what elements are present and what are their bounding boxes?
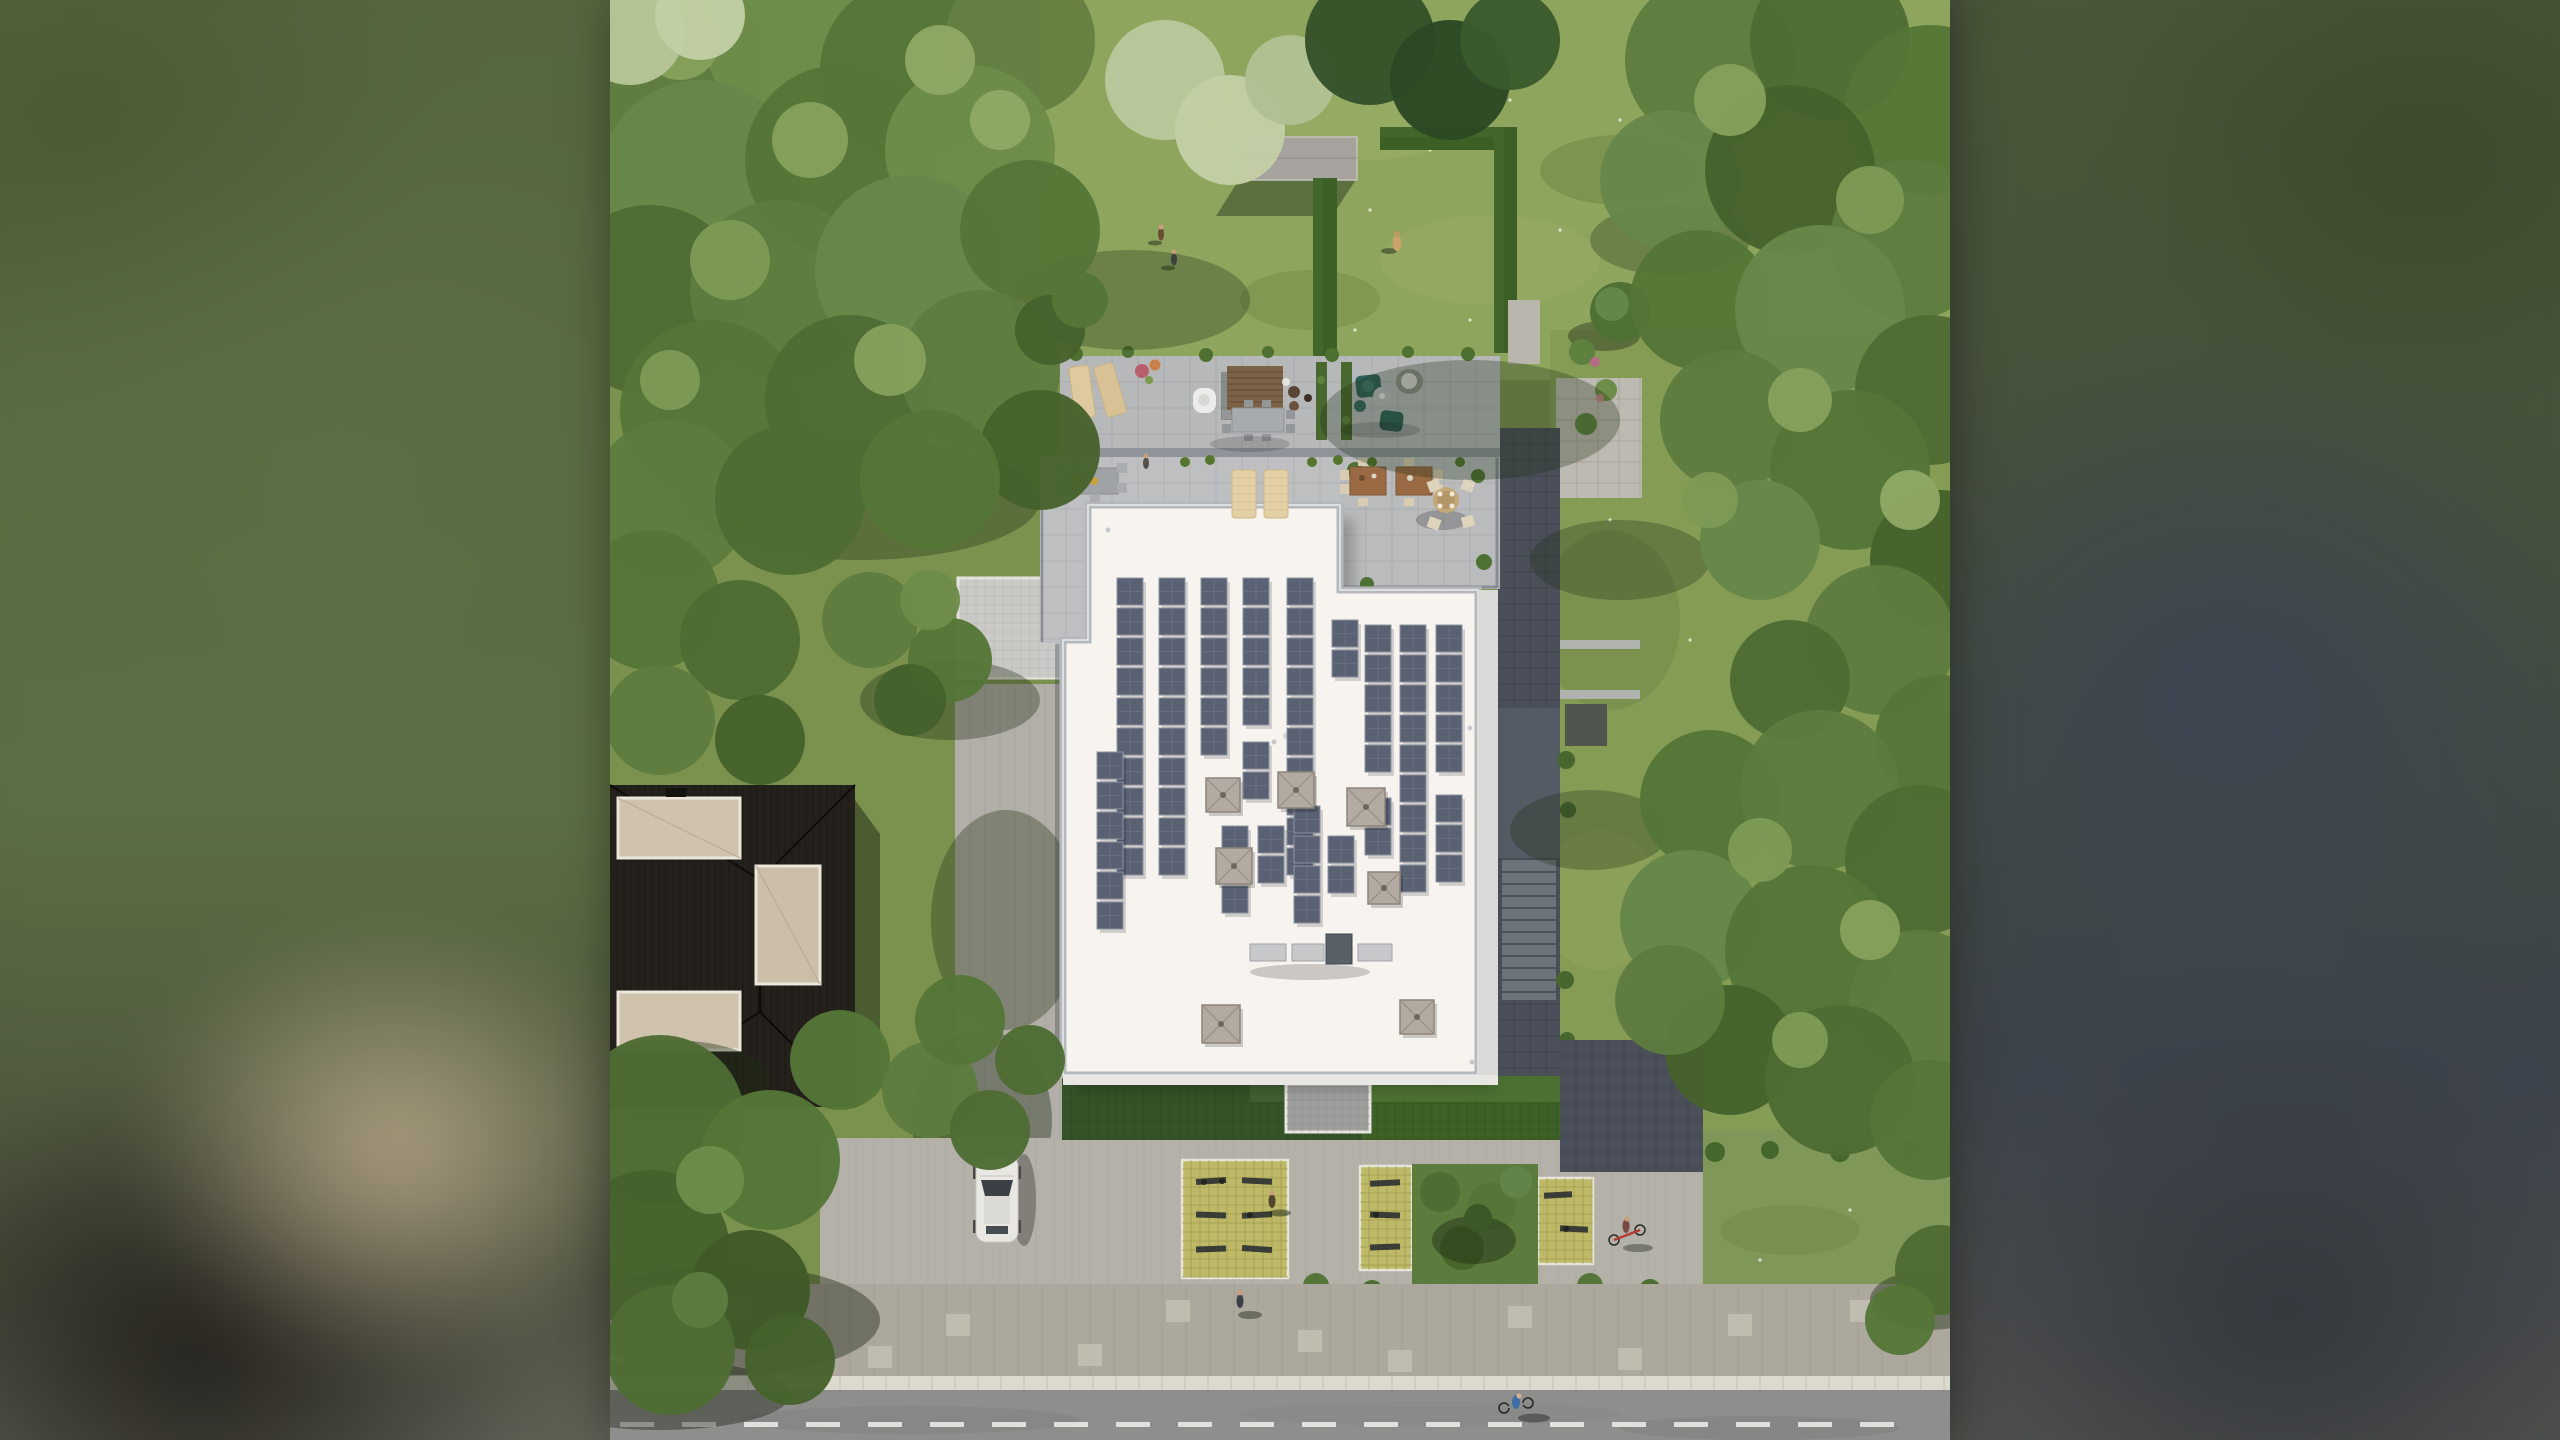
daisy	[1558, 228, 1561, 231]
chair	[1286, 424, 1295, 433]
paver-accent	[1618, 1348, 1642, 1370]
tree-canopy	[854, 324, 926, 396]
paver-accent	[1728, 1314, 1752, 1336]
table-decor	[1359, 475, 1365, 481]
planter-highlight	[1317, 376, 1325, 384]
lane-dashes	[1736, 1422, 1770, 1427]
lane-dashes	[1302, 1422, 1336, 1427]
lane-dashes	[1488, 1422, 1522, 1427]
car-rear-window	[986, 1226, 1008, 1234]
paver-accent	[868, 1346, 892, 1368]
person-head	[1159, 225, 1164, 230]
fire-bowl	[1288, 386, 1300, 398]
plate	[1438, 492, 1443, 497]
tree-canopy	[1052, 272, 1108, 328]
aerial-rendering	[610, 0, 1950, 1440]
blurred-backdrop-right	[1940, 0, 2560, 1440]
pedestrian-head	[1238, 1291, 1243, 1296]
lane-dashes	[1054, 1422, 1088, 1427]
person-terrace	[1143, 457, 1149, 469]
lane-dashes	[868, 1422, 902, 1427]
potted-plant	[1205, 455, 1215, 465]
terrace-bush	[1476, 554, 1492, 570]
bike-rack	[1196, 1245, 1226, 1252]
cream-chair	[1358, 498, 1368, 506]
paver-accent	[1388, 1350, 1412, 1372]
bike-wheel	[1219, 1178, 1225, 1184]
skylight-apex	[1220, 792, 1226, 798]
round-bush-highlight	[1595, 287, 1629, 321]
tree-canopy	[1768, 368, 1832, 432]
grass-mottle	[1240, 270, 1380, 330]
flower-pot	[1145, 376, 1153, 384]
terrace-green-fringe	[1262, 346, 1274, 358]
fire-bowl	[1289, 401, 1299, 411]
skylight-apex	[1381, 885, 1387, 891]
daisy	[1368, 208, 1371, 211]
lane-dashes	[1240, 1422, 1274, 1427]
tree-canopy	[690, 220, 770, 300]
lane-dashes	[1178, 1422, 1212, 1427]
tree-canopy	[1836, 166, 1904, 234]
tree-canopy	[1865, 1285, 1935, 1355]
paver-accent	[1166, 1300, 1190, 1322]
roof-pipe	[1106, 528, 1111, 533]
plate	[1282, 378, 1290, 386]
pedestrian-shadow	[1238, 1311, 1262, 1319]
hedge-dot	[1705, 1142, 1725, 1162]
tree-canopy	[676, 1146, 744, 1214]
lane-dashes	[992, 1422, 1026, 1427]
chimney	[666, 788, 686, 797]
plate	[1438, 504, 1443, 509]
bike-rack	[1370, 1243, 1400, 1250]
dog-head	[1394, 231, 1400, 237]
potted-plant	[1333, 455, 1343, 465]
garden-path	[1508, 300, 1540, 364]
lane-dashes	[1550, 1422, 1584, 1427]
vent-box	[1292, 944, 1324, 961]
asphalt-patch	[1620, 1416, 1900, 1440]
cream-chair	[1340, 484, 1349, 494]
shrub	[1556, 971, 1574, 989]
chair	[1117, 463, 1127, 473]
skylight-apex	[1414, 1014, 1420, 1020]
roof-pipe	[1272, 740, 1277, 745]
daisy	[1618, 118, 1621, 121]
table-decor	[1407, 475, 1413, 481]
chair	[1262, 400, 1271, 407]
car-windshield	[981, 1180, 1013, 1196]
tree-canopy	[610, 665, 715, 775]
chair	[1222, 410, 1231, 419]
shrub	[1420, 1172, 1460, 1212]
dining-table	[1232, 408, 1284, 432]
shrub	[1557, 751, 1575, 769]
tree-canopy	[1682, 472, 1738, 528]
grass-mottle	[1720, 1205, 1860, 1255]
tree-canopy	[905, 25, 975, 95]
flower-pot	[1150, 360, 1161, 371]
paver-accent	[1298, 1330, 1322, 1352]
chair	[1090, 494, 1100, 502]
tree-canopy	[970, 90, 1030, 150]
chair	[1286, 410, 1295, 419]
daisy	[1758, 1258, 1761, 1261]
wood-table	[1350, 467, 1386, 495]
tree-shadow	[1320, 360, 1620, 480]
roof-east-band	[1478, 590, 1498, 1078]
lane-dashes	[1860, 1422, 1894, 1427]
tree-canopy	[672, 1272, 728, 1328]
garden-pad	[1565, 704, 1607, 746]
tree-canopy	[995, 1025, 1065, 1095]
asphalt-patch	[740, 1406, 1080, 1434]
daisy	[1508, 98, 1511, 101]
tree-canopy	[1772, 1012, 1828, 1068]
stairs	[1502, 860, 1556, 1000]
lane-dashes	[1798, 1422, 1832, 1427]
daisy	[1353, 328, 1356, 331]
lane-dashes	[1426, 1422, 1460, 1427]
small-tree	[1464, 1204, 1492, 1232]
flower-pot	[1135, 364, 1149, 378]
skylight-apex	[1293, 787, 1299, 793]
tree-canopy	[950, 1090, 1030, 1170]
roof-south-edge	[1063, 1075, 1498, 1085]
skylight-apex	[1231, 863, 1237, 869]
lane-dashes	[806, 1422, 840, 1427]
daisy	[1688, 638, 1691, 641]
cyclist-head	[1517, 1394, 1522, 1399]
terrace-green-fringe	[1461, 347, 1475, 361]
chair	[1244, 400, 1253, 407]
lane-dashes	[930, 1422, 964, 1427]
hvac-unit	[1326, 934, 1352, 964]
tree-canopy	[745, 1315, 835, 1405]
tree-canopy	[715, 425, 865, 575]
roof-pipe	[1468, 726, 1473, 731]
paver-accent	[1078, 1344, 1102, 1366]
tree-canopy	[900, 570, 960, 630]
garden-wall	[1560, 690, 1640, 699]
vent-box	[1358, 944, 1392, 961]
tree-canopy	[860, 410, 1000, 550]
pedestrian-head	[1270, 1191, 1275, 1196]
roof-pipe	[1470, 1060, 1475, 1065]
table-decor	[1372, 474, 1377, 479]
lane-dashes	[1364, 1422, 1398, 1427]
round-set-shadow	[1416, 510, 1468, 530]
garden-wall	[1560, 640, 1640, 649]
plate	[1450, 504, 1455, 509]
pedestrian	[1237, 1294, 1244, 1308]
tree-canopy	[772, 102, 848, 178]
tree-canopy	[1615, 945, 1725, 1055]
hedge-highlight	[1313, 178, 1323, 365]
tree-canopy	[640, 350, 700, 410]
letterboxed-aerial-photo	[0, 0, 2560, 1440]
flower-pink	[1590, 357, 1600, 367]
paver-accent	[1508, 1306, 1532, 1328]
lane-dashes	[1674, 1422, 1708, 1427]
chair	[1222, 424, 1231, 433]
terrace-green-fringe	[1402, 346, 1414, 358]
skylight-apex	[1363, 804, 1369, 810]
daisy	[1848, 1208, 1851, 1211]
tree-canopy	[1840, 900, 1900, 960]
lane-dashes	[744, 1422, 778, 1427]
vent-shadow	[1250, 964, 1370, 980]
cream-chair	[1340, 470, 1349, 480]
person-terrace-head	[1144, 454, 1149, 459]
tree-canopy	[874, 664, 946, 736]
tree-canopy	[715, 695, 805, 785]
terrace-green-fringe	[1325, 348, 1339, 362]
skylight-apex	[1218, 1021, 1224, 1027]
daisy	[1468, 318, 1471, 321]
bike-wheel	[1201, 1179, 1207, 1185]
shrub	[1500, 1166, 1532, 1198]
tree-canopy	[1728, 818, 1792, 882]
tree-canopy	[1694, 64, 1766, 136]
chair	[1117, 483, 1127, 493]
bike-walker-shadow	[1623, 1244, 1653, 1252]
pedestrian	[1269, 1194, 1276, 1208]
tree-canopy	[915, 975, 1005, 1065]
person-shadow	[1148, 241, 1162, 246]
cyclist-shadow	[1518, 1414, 1550, 1423]
vent-box	[1250, 944, 1286, 961]
cream-chair	[1404, 498, 1414, 506]
hedge-highlight	[1494, 127, 1504, 353]
bike-walker-head	[1625, 1217, 1630, 1222]
paver-accent	[946, 1314, 970, 1336]
plate	[1450, 492, 1455, 497]
terrace-green-fringe	[1199, 348, 1213, 362]
bike-wheel	[1247, 1212, 1253, 1218]
bike-wheel	[1563, 1226, 1569, 1232]
dog	[1393, 235, 1402, 251]
tree-canopy	[1880, 470, 1940, 530]
blurred-backdrop-left	[0, 0, 680, 1440]
pedestrian-shadow	[1269, 1210, 1291, 1217]
lane-dashes	[1612, 1422, 1646, 1427]
bike-wheel	[1373, 1212, 1379, 1218]
grass-mottle	[1380, 215, 1600, 305]
car-roof	[984, 1196, 1010, 1224]
fire-bowl	[1304, 394, 1312, 402]
tree-canopy	[790, 1010, 890, 1110]
bike-rack	[1196, 1211, 1226, 1218]
lounge-chair-seat	[1198, 394, 1210, 406]
potted-plant	[1180, 457, 1190, 467]
furniture-shadow	[1210, 436, 1290, 452]
potted-plant	[1307, 457, 1317, 467]
hedge-dot	[1761, 1141, 1779, 1159]
tree-shadow	[1530, 520, 1710, 600]
lane-dashes	[1116, 1422, 1150, 1427]
